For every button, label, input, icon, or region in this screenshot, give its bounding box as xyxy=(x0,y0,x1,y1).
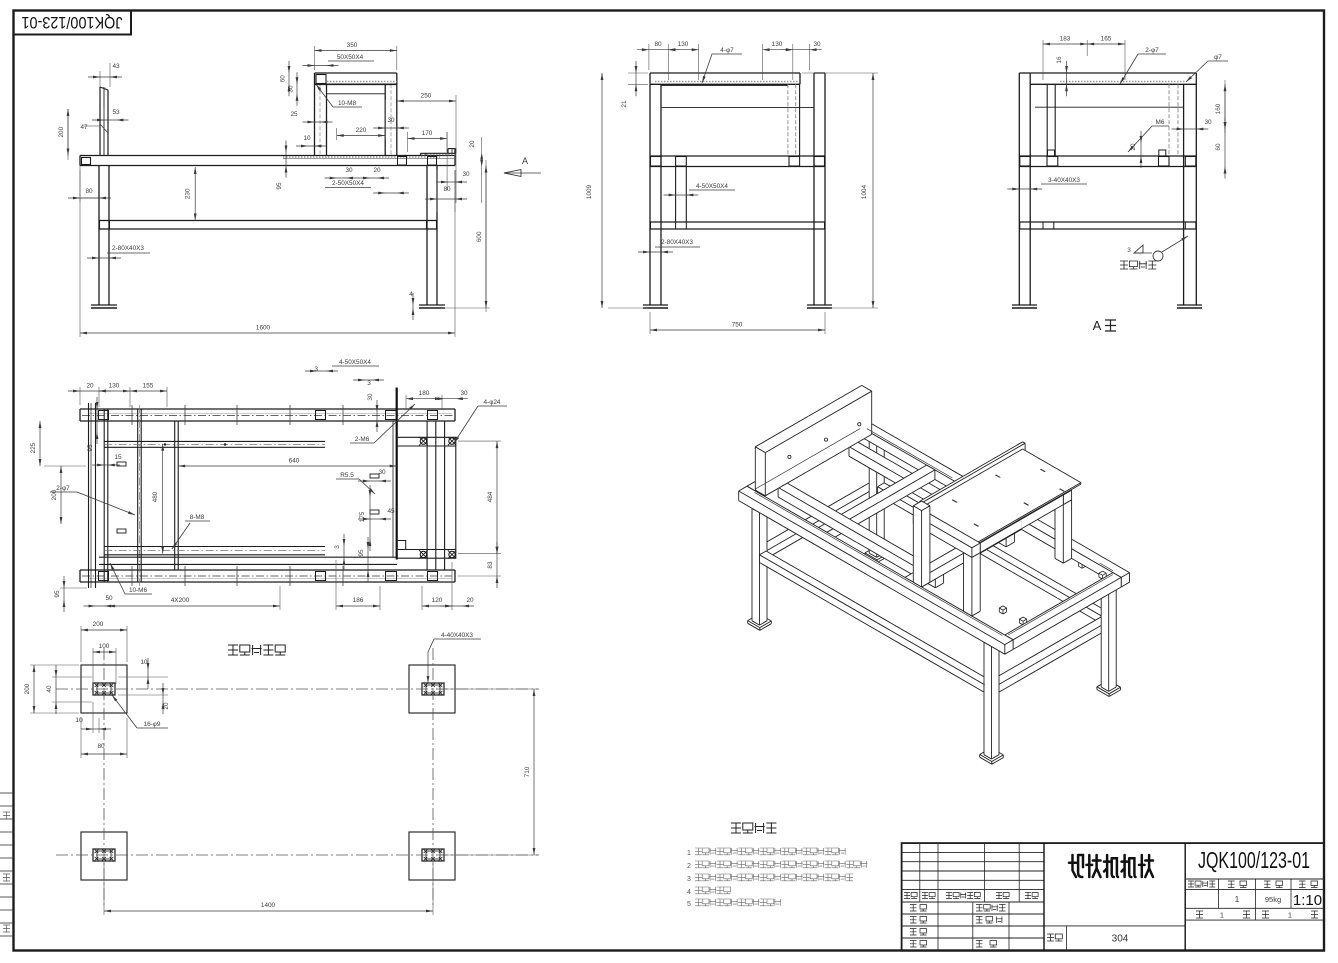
svg-text:30: 30 xyxy=(1204,119,1212,126)
svg-text:2-φ7: 2-φ7 xyxy=(56,485,70,492)
svg-text:183: 183 xyxy=(1060,36,1071,43)
svg-text:25: 25 xyxy=(290,111,298,118)
svg-text:φ7: φ7 xyxy=(1214,54,1222,61)
svg-text:M6: M6 xyxy=(1156,119,1165,126)
svg-text:750: 750 xyxy=(732,322,743,329)
svg-text:186: 186 xyxy=(353,597,364,604)
svg-text:43: 43 xyxy=(112,63,120,70)
svg-text:R5.5: R5.5 xyxy=(340,472,354,479)
svg-text:1: 1 xyxy=(687,850,691,857)
svg-text:30: 30 xyxy=(387,117,395,124)
svg-text:4X200: 4X200 xyxy=(171,597,190,604)
svg-text:2-50X50X4: 2-50X50X4 xyxy=(332,180,364,187)
svg-text:3-40X40X3: 3-40X40X3 xyxy=(1048,177,1080,184)
svg-text:60: 60 xyxy=(280,75,287,83)
svg-text:4-φ24: 4-φ24 xyxy=(484,399,501,406)
svg-text:80: 80 xyxy=(97,743,105,750)
svg-text:480: 480 xyxy=(152,491,159,502)
svg-text:100: 100 xyxy=(99,643,110,650)
svg-text:53: 53 xyxy=(112,109,120,116)
svg-text:200: 200 xyxy=(58,126,65,137)
svg-text:2-M6: 2-M6 xyxy=(355,436,370,443)
svg-text:2-80X40X3: 2-80X40X3 xyxy=(112,245,144,252)
svg-text:230: 230 xyxy=(185,188,192,199)
svg-text:40: 40 xyxy=(46,685,53,693)
svg-text:2-80X40X3: 2-80X40X3 xyxy=(661,239,693,246)
svg-text:710: 710 xyxy=(524,766,531,777)
svg-text:1004: 1004 xyxy=(861,184,868,199)
svg-text:30: 30 xyxy=(367,393,374,401)
svg-text:95kg: 95kg xyxy=(1265,895,1281,904)
svg-text:50X50X4: 50X50X4 xyxy=(337,54,364,61)
svg-text:1: 1 xyxy=(1288,911,1292,920)
svg-text:15: 15 xyxy=(114,454,122,461)
svg-text:30: 30 xyxy=(378,469,386,476)
svg-text:600: 600 xyxy=(476,231,483,242)
svg-text:3: 3 xyxy=(334,545,341,549)
svg-text:JQK100/123-01: JQK100/123-01 xyxy=(22,13,123,31)
svg-text:1600: 1600 xyxy=(256,325,271,332)
svg-text:16-φ9: 16-φ9 xyxy=(144,721,161,728)
svg-text:2-φ7: 2-φ7 xyxy=(1145,47,1159,54)
svg-text:3: 3 xyxy=(367,380,371,387)
svg-text:350: 350 xyxy=(347,42,358,49)
svg-text:640: 640 xyxy=(289,458,300,465)
svg-text:30: 30 xyxy=(460,390,468,397)
svg-text:3: 3 xyxy=(687,876,691,883)
svg-text:304: 304 xyxy=(1112,934,1129,945)
svg-text:A: A xyxy=(522,156,528,166)
svg-text:484: 484 xyxy=(487,491,494,502)
svg-text:JQK100/123-01: JQK100/123-01 xyxy=(1198,847,1310,873)
svg-text:1009: 1009 xyxy=(586,184,593,199)
svg-text:20: 20 xyxy=(373,167,381,174)
svg-text:30: 30 xyxy=(462,171,470,178)
svg-text:20: 20 xyxy=(163,702,170,710)
svg-text:1: 1 xyxy=(1235,895,1240,904)
svg-text:30: 30 xyxy=(288,85,295,93)
svg-text:1:10: 1:10 xyxy=(1293,892,1322,909)
svg-text:130: 130 xyxy=(109,383,120,390)
svg-text:1: 1 xyxy=(1220,911,1224,920)
svg-text:4-φ7: 4-φ7 xyxy=(720,47,734,54)
svg-text:10-M8: 10-M8 xyxy=(338,100,357,107)
svg-text:47: 47 xyxy=(80,124,88,131)
svg-text:10: 10 xyxy=(75,717,83,724)
svg-text:95: 95 xyxy=(54,590,61,598)
svg-text:10: 10 xyxy=(303,135,311,142)
svg-text:220: 220 xyxy=(356,127,367,134)
svg-text:4-50X50X4: 4-50X50X4 xyxy=(696,183,728,190)
svg-text:95: 95 xyxy=(87,444,94,452)
svg-text:165: 165 xyxy=(1101,36,1112,43)
svg-text:225: 225 xyxy=(30,442,37,453)
svg-text:4: 4 xyxy=(687,889,691,896)
svg-text:3: 3 xyxy=(1127,247,1131,254)
svg-text:80: 80 xyxy=(85,188,93,195)
svg-text:4-40X40X3: 4-40X40X3 xyxy=(441,632,473,639)
svg-text:1400: 1400 xyxy=(261,902,276,909)
svg-text:20: 20 xyxy=(86,383,94,390)
svg-text:155: 155 xyxy=(143,383,154,390)
svg-text:8-M8: 8-M8 xyxy=(190,514,205,521)
svg-text:60: 60 xyxy=(1215,143,1222,151)
svg-text:A: A xyxy=(1093,318,1102,333)
svg-text:83: 83 xyxy=(487,561,494,569)
svg-text:200: 200 xyxy=(24,683,31,694)
svg-text:30: 30 xyxy=(345,167,353,174)
svg-text:170: 170 xyxy=(422,130,433,137)
svg-text:180: 180 xyxy=(419,390,430,397)
svg-text:4: 4 xyxy=(409,291,413,298)
svg-text:20: 20 xyxy=(469,140,476,148)
svg-text:130: 130 xyxy=(772,41,783,48)
svg-text:30: 30 xyxy=(813,41,821,48)
svg-text:130: 130 xyxy=(678,41,689,48)
svg-text:2: 2 xyxy=(687,863,691,870)
svg-text:10-M6: 10-M6 xyxy=(129,587,148,594)
svg-text:3: 3 xyxy=(314,366,318,373)
svg-text:20: 20 xyxy=(1130,143,1137,151)
svg-text:80: 80 xyxy=(654,41,662,48)
svg-text:80: 80 xyxy=(443,186,451,193)
svg-text:200: 200 xyxy=(93,621,104,628)
svg-text:50: 50 xyxy=(105,595,113,602)
svg-text:4-50X50X4: 4-50X50X4 xyxy=(339,359,371,366)
svg-text:160: 160 xyxy=(1215,103,1222,114)
svg-text:45: 45 xyxy=(387,508,395,515)
svg-text:10: 10 xyxy=(140,659,148,666)
svg-text:95: 95 xyxy=(276,182,283,190)
svg-text:5: 5 xyxy=(687,901,691,908)
svg-text:16: 16 xyxy=(1056,56,1063,64)
svg-text:95: 95 xyxy=(358,549,365,557)
svg-text:250: 250 xyxy=(421,93,432,100)
svg-text:175: 175 xyxy=(359,511,366,522)
svg-text:21: 21 xyxy=(621,100,628,108)
svg-text:20: 20 xyxy=(466,597,474,604)
svg-text:120: 120 xyxy=(432,597,443,604)
